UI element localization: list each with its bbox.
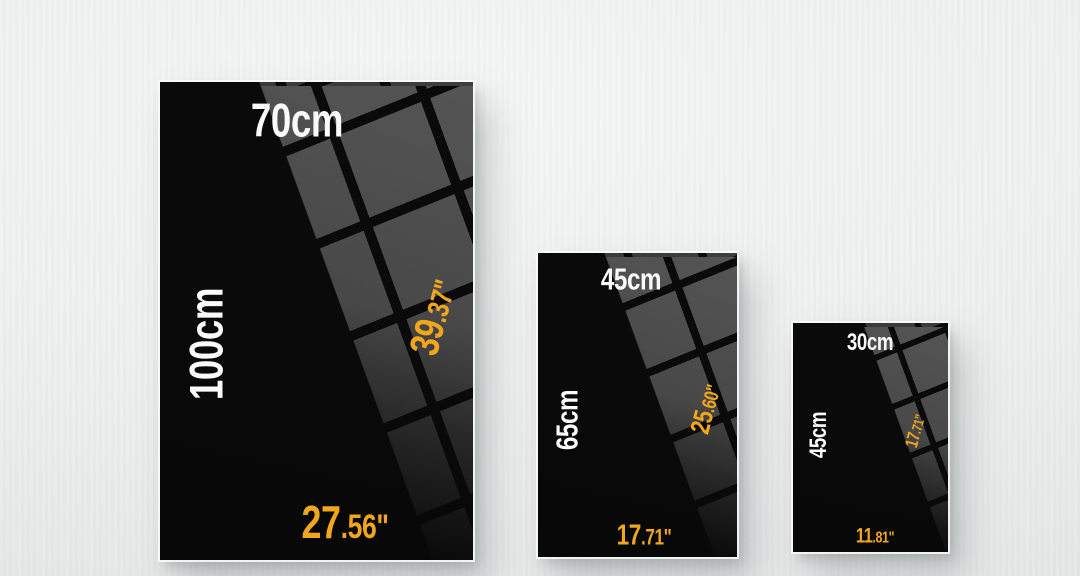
width-inches-label: 27.56"	[301, 499, 388, 545]
width-inches-label: 11.81"	[856, 526, 894, 547]
poster-size-comparison-scene: 70cm 100cm 39.37" 27.56" 45cm 65cm 25.60…	[0, 0, 1080, 576]
width-cm-label: 45cm	[601, 264, 661, 295]
poster-45x30: 30cm 45cm 17.71" 11.81"	[793, 323, 948, 552]
width-cm-label: 70cm	[251, 97, 343, 144]
height-cm-label: 45cm	[807, 412, 831, 458]
inches-integer: 17	[617, 520, 641, 552]
inches-fraction: .81"	[872, 530, 894, 547]
width-inches-label: 17.71"	[617, 522, 672, 551]
height-cm-label: 65cm	[552, 390, 583, 450]
poster-65x45: 45cm 65cm 25.60" 17.71"	[538, 253, 737, 557]
inches-fraction: .56"	[341, 508, 389, 546]
inches-fraction: .71"	[641, 525, 671, 550]
inches-integer: 27	[301, 496, 340, 548]
height-cm-label: 100cm	[183, 288, 230, 400]
width-cm-label: 30cm	[847, 331, 893, 355]
inches-integer: 11	[856, 525, 873, 548]
poster-100x70: 70cm 100cm 39.37" 27.56"	[160, 82, 473, 560]
